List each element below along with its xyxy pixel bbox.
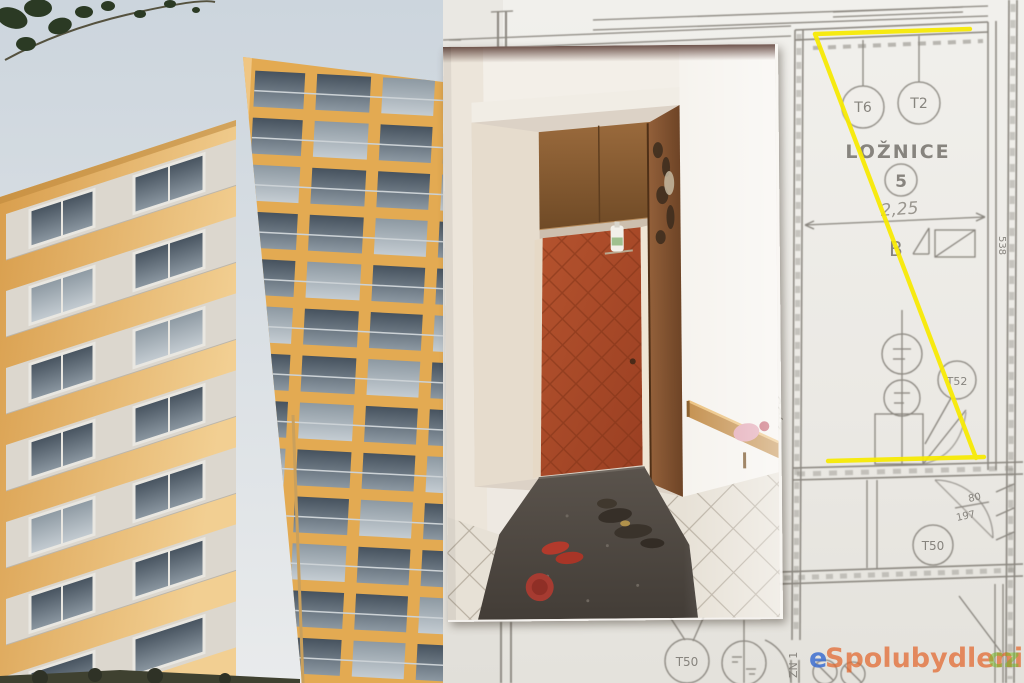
fixture-label-t6: T6 — [853, 100, 872, 116]
hallway-interior-photo — [443, 44, 783, 622]
hallway-drawing — [443, 44, 780, 620]
room-number: 5 — [895, 172, 907, 192]
listing-photo-collage: T6 T2 LOŽNICE 5 2,25 B 538 T52 2,35 T50 … — [0, 0, 1024, 683]
watermark-suffix: cz — [988, 643, 1020, 674]
front-door — [531, 227, 643, 478]
dimension-wall: 538 — [996, 236, 1007, 255]
fixture-label-t50-bottom: T50 — [675, 655, 699, 669]
inner-left-wall — [472, 122, 542, 487]
sheet-note: ZN 1 — [787, 652, 800, 678]
fixture-label-t50-side: T50 — [921, 539, 945, 553]
window-light — [679, 44, 780, 618]
facade-front — [0, 120, 236, 683]
door-handle — [630, 358, 636, 364]
interior-door — [648, 105, 683, 497]
fixture-label-t2: T2 — [909, 96, 927, 112]
overhead-cabinet — [539, 121, 660, 230]
watermark: e Spolubydleni. cz — [809, 643, 1024, 674]
photo-top-shade — [443, 44, 775, 63]
building-drawing — [0, 0, 443, 683]
building-exterior-photo — [0, 0, 443, 683]
